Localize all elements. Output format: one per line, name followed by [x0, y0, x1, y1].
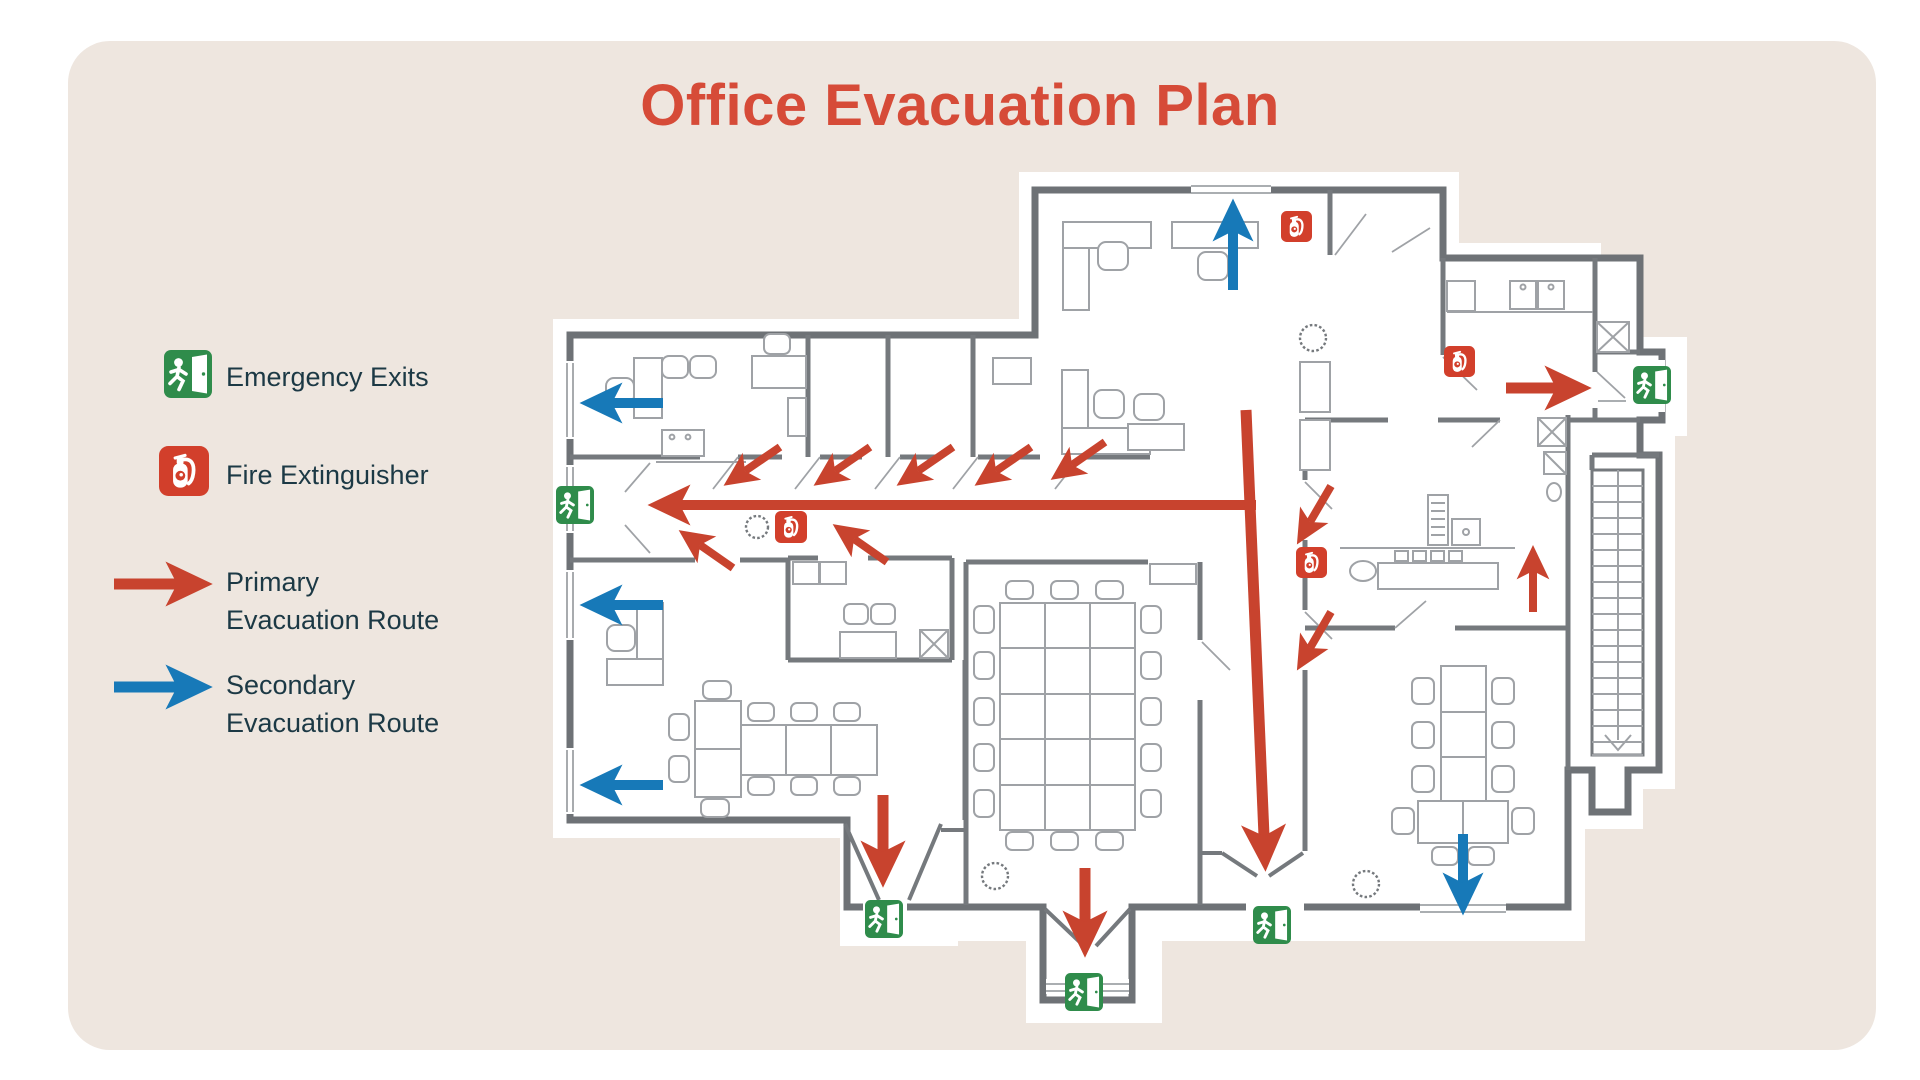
emergency-exit-icon [1065, 973, 1103, 1011]
evacuation-plan-page: Office Evacuation Plan Emergency Exits F… [0, 0, 1920, 1080]
floor-plan [0, 0, 1920, 1080]
emergency-exit-icon [865, 900, 903, 938]
legend-fire-extinguisher-icon [159, 446, 209, 496]
emergency-exit-icon [1253, 906, 1291, 944]
emergency-exit-icon [1633, 366, 1671, 404]
staircase [1592, 470, 1643, 755]
legend-emergency-exit-icon [164, 350, 212, 398]
fire-extinguisher-icon [1444, 346, 1475, 377]
fire-extinguisher-icon [1281, 211, 1312, 242]
emergency-exit-icon [556, 486, 594, 524]
fire-extinguisher-icon [775, 511, 807, 543]
fire-extinguisher-icon [1296, 547, 1327, 578]
